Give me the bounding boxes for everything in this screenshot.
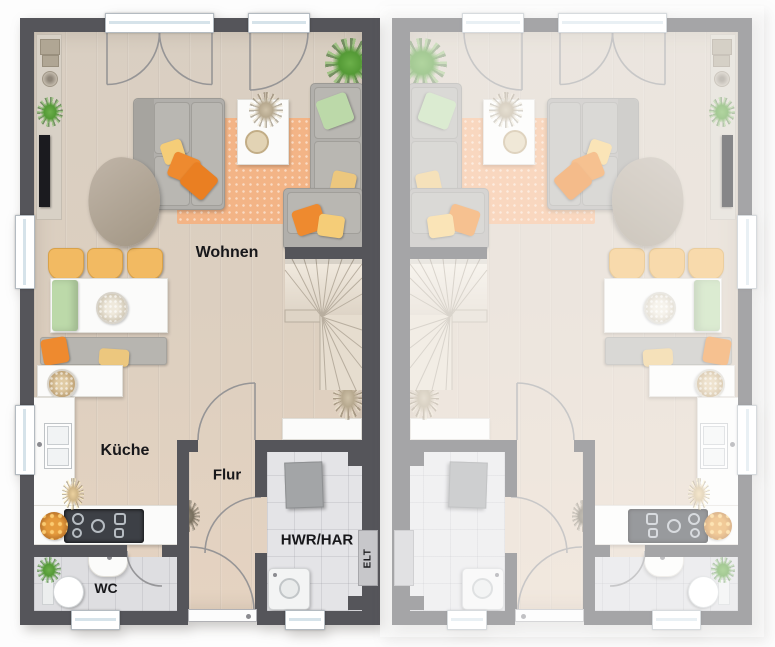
utility-appliance-gray	[448, 461, 488, 508]
decor-bowl	[47, 369, 77, 399]
wall-hall-top	[177, 440, 198, 452]
coffee-table	[237, 99, 289, 165]
wall-left	[20, 287, 34, 407]
cooktop	[628, 509, 708, 543]
wall-left	[738, 18, 752, 217]
window-dining	[737, 215, 757, 289]
media-sideboard	[36, 34, 62, 220]
floor-plan: ELT Wohnen Küche	[0, 0, 775, 647]
bench-gray	[40, 337, 167, 365]
washer-knob	[495, 573, 499, 577]
wc-label: WC	[94, 580, 117, 596]
kitchen-sink	[700, 423, 728, 469]
cooktop	[64, 509, 144, 543]
utility-appliance-gray	[284, 461, 324, 508]
sink-basin	[47, 448, 69, 466]
window-terrace-single	[462, 13, 524, 33]
living-room-label: Wohnen	[196, 244, 259, 262]
wall-pillar	[410, 596, 424, 610]
wall-pillar	[348, 596, 362, 610]
books	[713, 55, 730, 67]
wall-left	[738, 287, 752, 407]
window-wc	[652, 610, 701, 630]
wall-bottom	[257, 611, 287, 625]
books	[40, 39, 60, 55]
toilet	[53, 576, 84, 608]
wall-bottom	[699, 611, 752, 625]
unit-right	[392, 18, 752, 625]
pillow-orange	[40, 336, 70, 366]
wall-stair-stub	[285, 247, 362, 259]
wall-left	[20, 18, 34, 217]
washer-knob	[273, 573, 277, 577]
wall-pillar	[348, 452, 362, 466]
sideboard-stairs	[410, 418, 490, 440]
wall-top	[212, 18, 250, 32]
pillow-yellow	[427, 213, 456, 238]
burner	[690, 528, 700, 538]
window-utility	[285, 610, 325, 630]
burner	[72, 528, 82, 538]
door-handle	[521, 614, 526, 619]
sink-basin	[47, 426, 69, 445]
burner	[114, 528, 124, 538]
wall-hall-utility	[255, 452, 267, 497]
round-tray	[245, 130, 269, 154]
washer-drum	[279, 578, 300, 599]
burner	[646, 513, 658, 525]
pillow-yellow	[317, 213, 346, 238]
window-wc	[71, 610, 120, 630]
burner	[114, 513, 126, 525]
sideboard-dining	[649, 365, 735, 397]
window-terrace-double	[558, 13, 667, 33]
burner	[648, 528, 658, 538]
burner	[688, 513, 700, 525]
wall-hall-top	[255, 440, 362, 452]
door-handle	[246, 614, 251, 619]
hall-label: Flur	[213, 467, 241, 484]
electrical-label: ELT	[363, 548, 374, 568]
potted-plant	[709, 97, 735, 127]
window-terrace-double	[105, 13, 214, 33]
wall-hall-utility	[505, 452, 517, 497]
toilet	[688, 576, 719, 608]
potted-plant	[37, 97, 63, 127]
dining-chair	[48, 248, 84, 280]
burner	[667, 519, 681, 533]
fruit-bowl	[704, 512, 732, 540]
dining-chair	[688, 248, 724, 280]
washing-machine	[462, 568, 504, 610]
dining-bench-green	[694, 280, 720, 331]
pillow-orange	[702, 336, 732, 366]
tv-screen	[722, 135, 733, 207]
dining-chair	[609, 248, 645, 280]
window-kitchen	[15, 405, 35, 475]
window-utility	[447, 610, 487, 630]
wall-bottom	[584, 611, 654, 625]
centerpiece-bowl	[644, 292, 676, 324]
wall-hall-top	[574, 440, 595, 452]
wc-plant	[711, 557, 735, 583]
decor-bowl	[695, 369, 725, 399]
wall-kitchen-hall	[177, 440, 189, 612]
dining-chair	[649, 248, 685, 280]
wall-kitchen-hall	[583, 440, 595, 612]
washing-machine	[268, 568, 310, 610]
sink-basin	[703, 426, 725, 445]
faucet	[37, 442, 42, 447]
wall-stair-stub	[410, 247, 487, 259]
books	[712, 39, 732, 55]
wall-hall-utility	[255, 553, 267, 612]
kitchen-sink	[44, 423, 72, 469]
electrical-panel	[394, 530, 414, 586]
wall-kitchen-wc	[645, 545, 752, 557]
wc-plant	[37, 557, 61, 583]
burner	[72, 513, 84, 525]
wall-hall-top	[410, 440, 517, 452]
dried-plant-stairs	[409, 376, 439, 420]
faucet	[730, 442, 735, 447]
dried-plant	[249, 92, 283, 128]
front-door-leaf	[515, 609, 584, 622]
round-tray	[503, 130, 527, 154]
unit-left: ELT Wohnen Küche	[20, 18, 380, 625]
speaker-icon	[42, 71, 58, 87]
dining-chair	[87, 248, 123, 280]
corner-sofa-horizontal	[283, 188, 363, 250]
burner	[91, 519, 105, 533]
wall-kitchen-wc	[583, 545, 610, 557]
flower-sprigs	[62, 478, 84, 510]
electrical-panel: ELT	[358, 530, 378, 586]
front-door-leaf	[188, 609, 257, 622]
sideboard-dining	[37, 365, 123, 397]
wall-top	[522, 18, 560, 32]
wall-bottom	[485, 611, 515, 625]
bench-gray	[605, 337, 732, 365]
wall-kitchen-wc	[162, 545, 189, 557]
sink-basin	[703, 448, 725, 466]
wall-hall-utility	[505, 553, 517, 612]
wall-kitchen-wc	[20, 545, 127, 557]
wall-bottom	[20, 611, 73, 625]
coffee-table	[483, 99, 535, 165]
media-sideboard	[710, 34, 736, 220]
wall-pillar	[410, 452, 424, 466]
corner-sofa-horizontal	[409, 188, 489, 250]
kitchen-label: Küche	[101, 442, 150, 460]
tv-screen	[39, 135, 50, 207]
wall-bottom	[118, 611, 188, 625]
speaker-icon	[714, 71, 730, 87]
window-kitchen	[737, 405, 757, 475]
dining-chair	[127, 248, 163, 280]
utility-label: HWR/HAR	[281, 532, 354, 549]
flower-sprigs	[688, 478, 710, 510]
books	[42, 55, 59, 67]
fruit-bowl	[40, 512, 68, 540]
centerpiece-bowl	[96, 292, 128, 324]
washer-drum	[472, 578, 493, 599]
dried-plant	[489, 92, 523, 128]
dining-bench-green	[52, 280, 78, 331]
window-dining	[15, 215, 35, 289]
window-terrace-single	[248, 13, 310, 33]
dried-plant-stairs	[333, 376, 363, 420]
sideboard-stairs	[282, 418, 362, 440]
